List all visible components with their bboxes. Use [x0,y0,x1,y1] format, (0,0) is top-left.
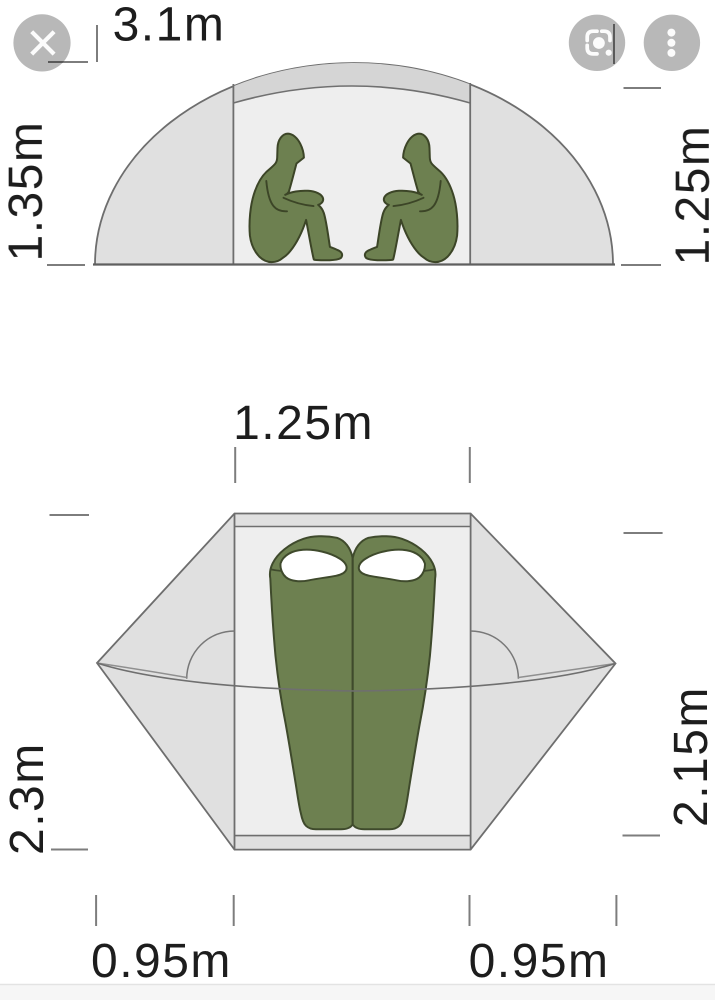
svg-text:1.25m: 1.25m [667,125,715,266]
svg-text:2.3m: 2.3m [1,742,54,855]
svg-text:2.15m: 2.15m [665,686,715,827]
svg-text:1.25m: 1.25m [233,397,374,450]
svg-text:1.35m: 1.35m [0,121,53,262]
svg-text:0.95m: 0.95m [469,935,610,988]
svg-text:3.1m: 3.1m [113,0,226,52]
svg-text:0.95m: 0.95m [91,935,232,988]
